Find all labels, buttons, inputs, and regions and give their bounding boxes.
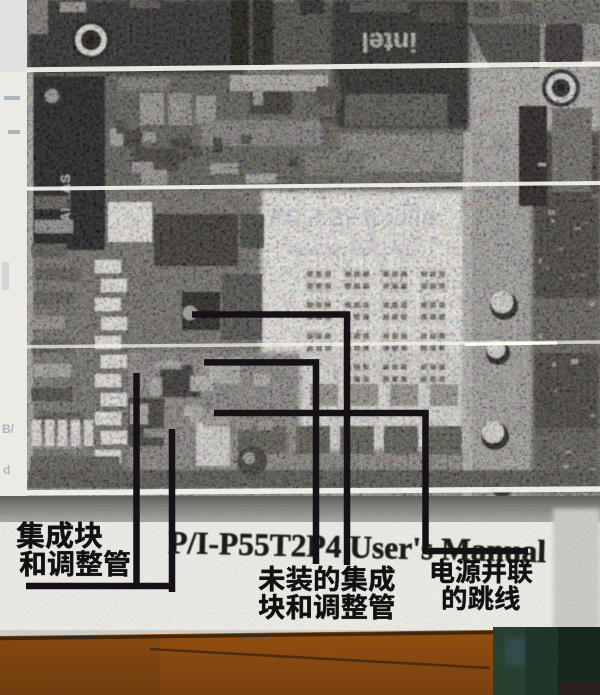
svg-text:d: d — [3, 463, 10, 477]
svg-text:B/: B/ — [2, 422, 15, 436]
